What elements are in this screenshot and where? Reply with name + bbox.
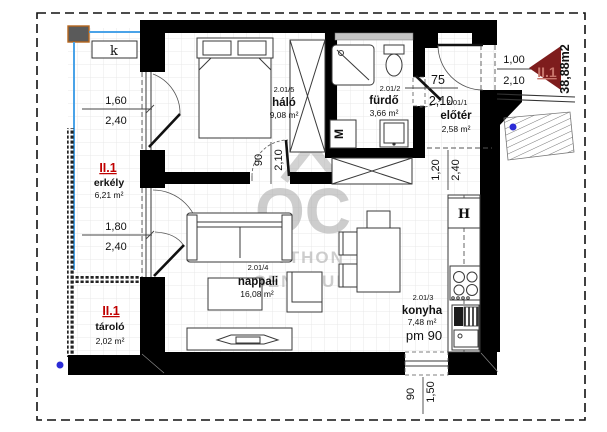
dim-living-window-w: 1,80 xyxy=(105,221,126,233)
konyha-code: 2.01/3 xyxy=(413,293,434,302)
erkely-area: 6,21 m² xyxy=(95,190,124,200)
wall-right xyxy=(480,90,500,352)
halo-area: 9,08 m² xyxy=(270,110,299,120)
unit-total-area: 38,88m2 xyxy=(558,44,572,93)
dim-entry-door-w: 1,00 xyxy=(503,54,524,66)
blue-marker-dot-right xyxy=(510,124,517,131)
furdo-code: 2.01/2 xyxy=(380,84,401,93)
bed-pillow-right xyxy=(238,41,266,55)
dining-chair-left2 xyxy=(339,264,357,287)
dim-living-window-h: 2,40 xyxy=(105,241,126,253)
floor-plan-page: OC OTTHON CENTRUM k xyxy=(0,0,607,432)
floor-plan-canvas: OC OTTHON CENTRUM k xyxy=(0,0,607,432)
room-halo: 2.01/5 háló 9,08 m² xyxy=(270,85,299,120)
unit-arrow-group: II.1 38,88m2 xyxy=(529,44,572,93)
washing-machine-label: M xyxy=(332,129,346,139)
wall-left-pier2 xyxy=(140,150,165,188)
shaft-hatched-square xyxy=(68,26,89,42)
balcony-railing-hatch xyxy=(67,128,75,276)
washbasin-tap xyxy=(392,142,395,145)
eloter-area: 2,58 m² xyxy=(442,124,471,134)
sofa-arm-left xyxy=(187,215,197,260)
dim-kitchen-window-w: 90 xyxy=(405,388,417,400)
sink-bowl xyxy=(454,330,478,347)
nappali-area: 16,08 m² xyxy=(240,289,274,299)
eloter-code: 2.01/1 xyxy=(447,98,468,107)
konyha-parapet: pm 90 xyxy=(406,328,442,343)
stair-hatch-area xyxy=(504,112,574,160)
tarolo-name: tároló xyxy=(95,321,124,333)
blue-marker-dot-left xyxy=(57,362,64,369)
wall-bath-bottom xyxy=(325,148,425,158)
wall-bottom-left xyxy=(140,352,407,375)
cooktop xyxy=(450,266,480,300)
sink-drainer-stripes xyxy=(464,307,478,326)
wall-left-pier1 xyxy=(140,20,165,72)
fridge-label: H xyxy=(458,207,470,222)
nappali-code: 2.01/4 xyxy=(248,263,269,272)
toilet-bowl xyxy=(386,54,402,76)
wall-left-pier3 xyxy=(140,277,165,357)
kitchen-window-opening xyxy=(405,352,448,375)
bed-mattress xyxy=(199,58,271,138)
wall-bottom-right xyxy=(448,352,497,375)
dining-chair-top xyxy=(367,211,390,228)
dining-table xyxy=(357,228,400,292)
dim-bedroom-door-h: 2,10 xyxy=(273,149,285,170)
dim-bedroom-window-h: 2,40 xyxy=(105,115,126,127)
dim-passage-h: 2,40 xyxy=(450,159,462,180)
wall-storage-bottom xyxy=(68,355,143,375)
konyha-name: konyha xyxy=(402,305,443,317)
tarolo-area: 2,02 m² xyxy=(96,336,125,346)
furdo-area: 3,66 m² xyxy=(370,108,399,118)
dim-bath-door-w: 75 xyxy=(431,73,445,87)
k-marker-label: k xyxy=(110,44,118,59)
storage-wall-hatch-left xyxy=(67,276,75,357)
highwindow-top-wall xyxy=(335,33,413,40)
dining-chair-left1 xyxy=(339,232,357,255)
wall-top xyxy=(140,20,497,33)
konyha-area: 7,48 m² xyxy=(408,317,437,327)
sink-drainer-dark xyxy=(454,307,463,326)
toilet-tank xyxy=(384,45,404,54)
wall-entry-right xyxy=(472,33,497,45)
unit-arrow-label: II.1 xyxy=(537,64,557,80)
dim-entry-door-h: 2,10 xyxy=(503,75,524,87)
dim-bedroom-door-w: 90 xyxy=(253,154,265,166)
furdo-name: fürdő xyxy=(369,95,398,107)
sofa-arm-right xyxy=(282,215,292,260)
eloter-name: előtér xyxy=(440,110,472,122)
dim-kitchen-window-h: 1,50 xyxy=(425,381,437,402)
wall-bedroom-bottom-left xyxy=(163,172,250,184)
dim-bedroom-window-w: 1,60 xyxy=(105,95,126,107)
dim-passage-w: 1,20 xyxy=(430,159,442,180)
erkely-unit: II.1 xyxy=(99,161,116,175)
nappali-name: nappali xyxy=(238,276,278,288)
bed-pillow-left xyxy=(203,41,231,55)
halo-code: 2.01/5 xyxy=(274,85,295,94)
wall-bath-right-top xyxy=(413,33,425,77)
wall-bedroom-bottom-right xyxy=(290,172,337,184)
erkely-name: erkély xyxy=(94,177,125,189)
tarolo-unit: II.1 xyxy=(102,304,119,318)
halo-name: háló xyxy=(272,97,296,109)
storage-wall-hatch-top xyxy=(70,276,140,283)
